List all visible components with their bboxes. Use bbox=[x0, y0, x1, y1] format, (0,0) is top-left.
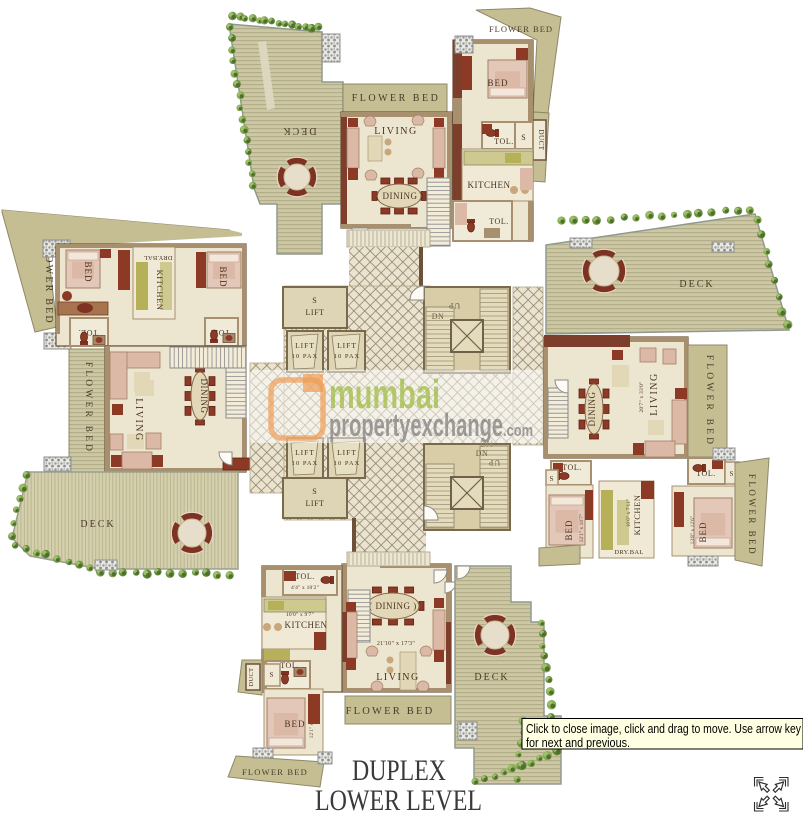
svg-text:TOL.: TOL. bbox=[489, 217, 508, 226]
svg-text:( DINING ): ( DINING ) bbox=[369, 601, 417, 611]
svg-text:DECK: DECK bbox=[679, 279, 714, 290]
svg-text:Click to close image, click an: Click to close image, click and drag to … bbox=[526, 721, 801, 736]
svg-text:DINING: DINING bbox=[587, 392, 597, 427]
svg-text:LIFT: LIFT bbox=[306, 308, 325, 317]
svg-text:FLOWER BED: FLOWER BED bbox=[242, 767, 308, 777]
svg-text:S: S bbox=[550, 475, 555, 483]
svg-text:KITCHEN: KITCHEN bbox=[632, 495, 642, 536]
svg-text:DUCT: DUCT bbox=[537, 129, 545, 150]
svg-text:for next and previous.: for next and previous. bbox=[526, 735, 630, 750]
svg-text:FLOWER BED: FLOWER BED bbox=[747, 474, 757, 556]
svg-text:FLOWER BED: FLOWER BED bbox=[489, 24, 553, 34]
svg-text:10'0" x 9'7": 10'0" x 9'7" bbox=[286, 612, 314, 618]
svg-text:S: S bbox=[730, 470, 735, 478]
svg-text:LIVING: LIVING bbox=[376, 672, 419, 683]
svg-text:BED: BED bbox=[488, 78, 509, 88]
svg-text:10'0" x 7'11": 10'0" x 7'11" bbox=[627, 499, 632, 527]
svg-text:DECK: DECK bbox=[474, 672, 509, 683]
svg-text:KITCHEN: KITCHEN bbox=[155, 270, 165, 311]
svg-text:LIFT: LIFT bbox=[306, 499, 325, 508]
svg-text:DRY.BAL: DRY.BAL bbox=[143, 254, 172, 261]
svg-text:DUCT: DUCT bbox=[248, 668, 255, 687]
svg-text:LOWER LEVEL: LOWER LEVEL bbox=[315, 784, 482, 817]
svg-text:LIVING: LIVING bbox=[133, 398, 144, 441]
svg-text:TOL.: TOL. bbox=[295, 572, 314, 581]
svg-text:S: S bbox=[312, 296, 317, 305]
svg-text:BED: BED bbox=[218, 267, 228, 288]
svg-text:DN: DN bbox=[480, 439, 493, 449]
svg-text:BED: BED bbox=[698, 522, 708, 543]
svg-text:S: S bbox=[270, 671, 275, 679]
svg-text:DRY.BAL: DRY.BAL bbox=[614, 549, 643, 556]
svg-text:( DINING ): ( DINING ) bbox=[376, 191, 424, 201]
svg-text:S: S bbox=[312, 487, 317, 496]
svg-text:TOL.: TOL. bbox=[494, 137, 513, 146]
svg-text:FLOWER BED: FLOWER BED bbox=[704, 355, 714, 447]
svg-text:UP: UP bbox=[488, 458, 500, 467]
svg-text:DECK: DECK bbox=[281, 125, 316, 136]
svg-text:21'10" x 17'3": 21'10" x 17'3" bbox=[377, 641, 416, 647]
svg-text:LIFT: LIFT bbox=[337, 448, 357, 457]
svg-text:LIFT: LIFT bbox=[295, 341, 315, 350]
svg-text:FLOWER BED: FLOWER BED bbox=[346, 706, 435, 717]
svg-text:LIFT: LIFT bbox=[337, 341, 357, 350]
svg-text:LIFT: LIFT bbox=[295, 448, 315, 457]
svg-text:DUPLEX: DUPLEX bbox=[352, 754, 446, 787]
svg-text:12'1" x 10'7": 12'1" x 10'7" bbox=[580, 514, 585, 542]
svg-text:KITCHEN: KITCHEN bbox=[468, 180, 511, 190]
svg-text:KITCHEN: KITCHEN bbox=[285, 620, 328, 630]
svg-text:TOL.: TOL. bbox=[562, 463, 581, 472]
svg-text:BED: BED bbox=[285, 719, 306, 729]
svg-text:10 PAX: 10 PAX bbox=[292, 353, 319, 360]
svg-text:FLOWER BED: FLOWER BED bbox=[352, 93, 441, 104]
svg-text:BED: BED bbox=[564, 520, 574, 541]
svg-text:DECK: DECK bbox=[80, 519, 115, 530]
svg-text:S: S bbox=[521, 133, 526, 142]
svg-text:10 PAX: 10 PAX bbox=[334, 460, 361, 467]
svg-text:10 PAX: 10 PAX bbox=[334, 353, 361, 360]
svg-text:10 PAX: 10 PAX bbox=[292, 460, 319, 467]
svg-text:13'8" x 12'6": 13'8" x 12'6" bbox=[691, 516, 696, 544]
svg-text:LIVING: LIVING bbox=[649, 372, 660, 415]
svg-text:.com: .com bbox=[503, 421, 533, 440]
svg-text:DINING: DINING bbox=[199, 379, 209, 414]
svg-text:FLOWER BED: FLOWER BED bbox=[83, 362, 93, 454]
svg-text:propertyexchange: propertyexchange bbox=[329, 407, 503, 443]
svg-text:BED: BED bbox=[83, 262, 93, 283]
svg-text:DN: DN bbox=[476, 449, 489, 458]
svg-text:UP: UP bbox=[448, 301, 460, 310]
svg-text:4'4" x 10'2": 4'4" x 10'2" bbox=[291, 585, 319, 591]
svg-text:DN: DN bbox=[432, 312, 445, 321]
svg-text:LIVING: LIVING bbox=[374, 126, 417, 137]
svg-text:20'7" x 33'0": 20'7" x 33'0" bbox=[639, 381, 645, 412]
